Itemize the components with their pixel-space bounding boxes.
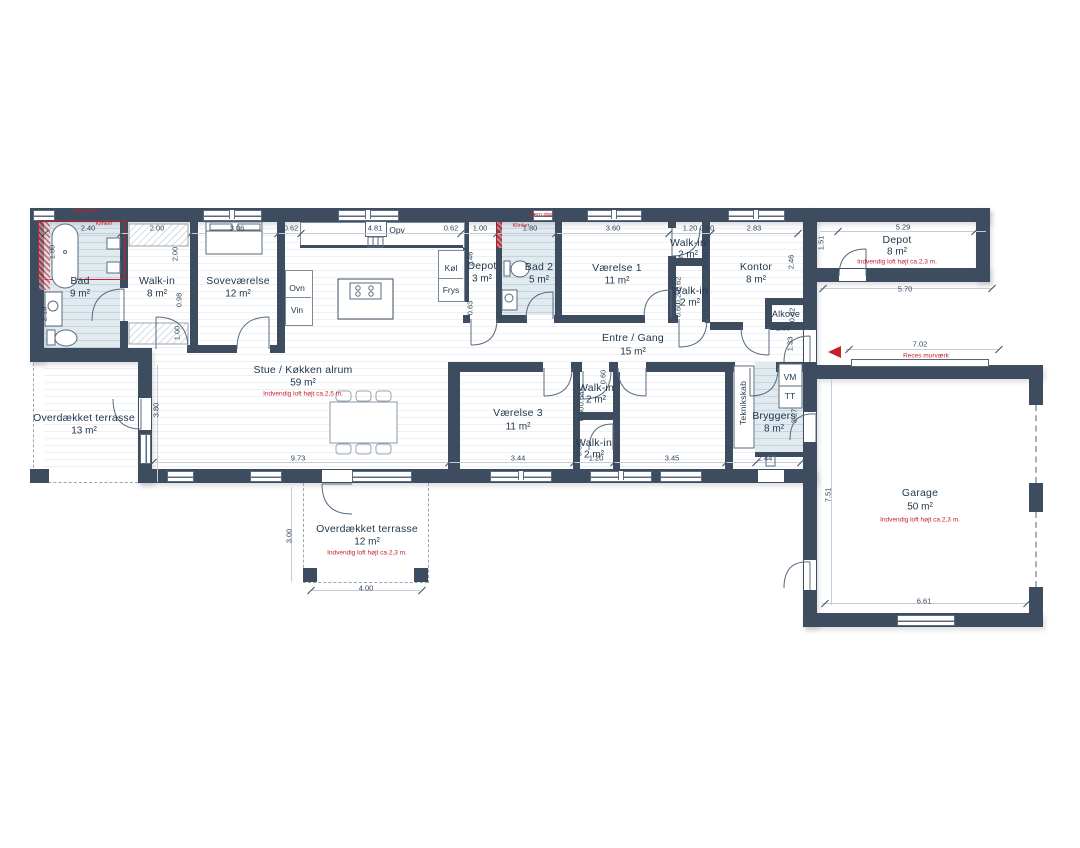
room-label-teknik: Teknikskab: [738, 381, 748, 425]
sink: [107, 238, 120, 249]
dim-label: 3.27: [790, 409, 799, 424]
room-area: 2 m²: [680, 298, 700, 309]
room-area: 2 m²: [586, 395, 606, 406]
dim-label: 2.40: [81, 224, 96, 233]
dim-label: 1.00: [776, 324, 791, 333]
ceiling-note: Indvendig loft højt ca.2,5 m.: [263, 391, 343, 398]
room-area: 8 m²: [746, 275, 766, 286]
dim-label: 0.62: [284, 224, 299, 233]
room-label-terrasse2: Overdækket terrasse: [316, 523, 418, 535]
appliance-vm: VM: [784, 372, 797, 382]
dim-label: 2.00: [171, 247, 180, 262]
dim-label: 2.46: [787, 255, 796, 270]
dim-label: 0.63: [466, 301, 475, 316]
sink: [107, 262, 120, 273]
dim-label: 3.60: [606, 224, 621, 233]
room-area: 2 m²: [678, 250, 698, 261]
room-area: 50 m²: [907, 502, 933, 513]
floor-plan: Bad 9 m² Walk-in 8 m² Soveværelse 12 m² …: [0, 0, 1080, 848]
room-label-bad2: Bad 2: [525, 261, 553, 273]
room-label-sove: Soveværelse: [206, 275, 269, 287]
dim-label: 4.81: [368, 224, 383, 233]
room-area: 8 m²: [887, 247, 907, 258]
appliance-opv: Opv: [389, 225, 405, 235]
room-area: 8 m²: [764, 424, 784, 435]
vaern-glas-note: Værn glas: [73, 208, 98, 214]
room-label-garage: Garage: [902, 487, 938, 499]
room-label-walkin1: Walk-in: [139, 275, 175, 287]
chair: [336, 444, 351, 454]
room-area: 3 m²: [472, 274, 492, 285]
dim-label: 0.60: [599, 370, 608, 385]
room-area: 9 m²: [70, 289, 90, 300]
dim-label: 7.02: [913, 340, 928, 349]
dim-label: 1.20: [589, 454, 604, 463]
room-label-terrasse1: Overdækket terrasse: [33, 412, 135, 424]
room-label-depot8: Depot: [882, 234, 911, 246]
dim-label: 9.73: [291, 454, 306, 463]
dim-label: 1.00: [473, 224, 488, 233]
vanity: [502, 290, 517, 310]
dim-label: 2.46: [466, 252, 475, 267]
room-area: 12 m²: [225, 289, 251, 300]
dim-label: 0.98: [175, 293, 184, 308]
dim-label: 2.83: [747, 224, 762, 233]
dim-label: 1.80: [523, 224, 538, 233]
chair: [356, 391, 371, 401]
reces-murvaerk-note: Reces murværk: [903, 353, 949, 360]
dim-label: 1.33: [786, 337, 795, 352]
dim-label: 6.61: [917, 597, 932, 606]
vaern-glas-note: Værn glas: [528, 212, 553, 218]
dim-label: 3.80: [152, 403, 161, 418]
room-label-v1: Værelse 1: [592, 262, 642, 274]
room-area: 13 m²: [71, 426, 97, 437]
dim-label: 0.30: [577, 407, 586, 422]
room-label-entre: Entre / Gang: [602, 332, 664, 344]
ceiling-note: Indvendig loft højt ca.2,3 m.: [327, 550, 407, 557]
room-label-kontor: Kontor: [740, 261, 772, 273]
vent-grid-icon: [368, 237, 383, 247]
dim-label: 5.70: [898, 285, 913, 294]
room-area: 8 m²: [147, 289, 167, 300]
dim-label: 2.18: [40, 307, 49, 322]
room-area: 15 m²: [620, 347, 646, 358]
dim-label: 0.68: [701, 255, 710, 270]
toilet: [55, 330, 77, 346]
room-label-v3: Værelse 3: [493, 407, 543, 419]
dim-label: 2.00: [150, 224, 165, 233]
dining-table: [330, 402, 397, 443]
dim-label: 5.29: [896, 223, 911, 232]
fixtures-layer: [0, 0, 1080, 848]
dim-label: 3.45: [665, 454, 680, 463]
dim-label: 0.60: [700, 224, 715, 233]
dim-label: 0.60: [575, 442, 584, 457]
dim-label: 3.44: [511, 454, 526, 463]
chair: [376, 391, 391, 401]
dim-label: 1.00: [173, 326, 182, 341]
dim-label: 0.68: [577, 392, 586, 407]
dim-label: 7.51: [824, 488, 833, 503]
ceiling-note: Indvendig loft højt ca.2,3 m.: [857, 259, 937, 266]
dim-label: 0.62: [788, 308, 797, 323]
dim-label: 4.00: [359, 584, 374, 593]
appliance-koel: Køl: [445, 263, 458, 273]
room-label-stue: Stue / Køkken alrum: [254, 364, 353, 376]
chair: [356, 444, 371, 454]
klinker-note: Klinker: [96, 221, 113, 227]
appliance-ovn: Ovn: [289, 283, 305, 293]
appliance-tt: TT: [785, 391, 795, 401]
dim-label: 2.44: [758, 454, 773, 463]
dim-label: 0.62: [444, 224, 459, 233]
appliance-frys: Frys: [443, 285, 460, 295]
appliance-vin: Vin: [291, 305, 303, 315]
dim-label: 3.00: [285, 529, 294, 544]
chair: [376, 444, 391, 454]
dim-label: 1.20: [683, 224, 698, 233]
room-label-bad: Bad: [70, 275, 89, 287]
dim-label: 1.51: [817, 236, 826, 251]
dim-label: 0.60: [701, 239, 710, 254]
room-area: 59 m²: [290, 378, 316, 389]
dim-label: 0.60: [674, 303, 683, 318]
dim-label: 3.06: [230, 224, 245, 233]
ceiling-note: Indvendig loft højt ca.2,3 m.: [880, 517, 960, 524]
room-area: 12 m²: [354, 537, 380, 548]
toilet-tank: [504, 261, 510, 276]
room-area: 11 m²: [605, 276, 630, 287]
toilet-tank: [47, 330, 55, 345]
room-area: 5 m²: [529, 275, 549, 286]
dim-label: 1.80: [48, 245, 57, 260]
room-area: 11 m²: [506, 422, 531, 433]
